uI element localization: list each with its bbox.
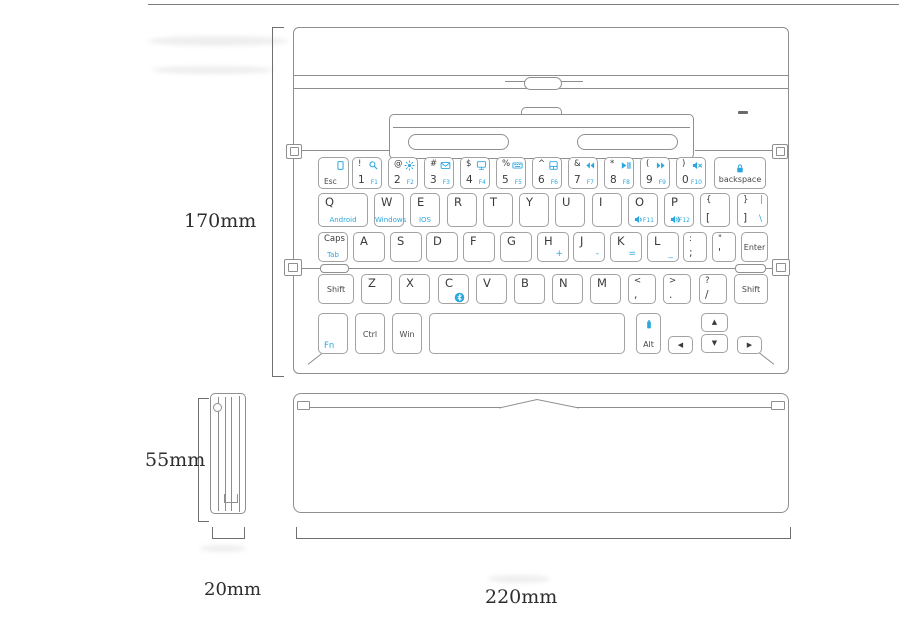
key-main-legend: R	[454, 197, 462, 209]
next-track-icon	[656, 160, 667, 171]
diagram-canvas: Esc!1F1@2F2#3F3$4F4%5F5^6F6&7F7*8F8(9F9)…	[0, 0, 899, 622]
key-space	[429, 313, 625, 354]
key-main-legend: backspace	[719, 176, 761, 184]
key-main-legend: 4	[466, 175, 473, 186]
lid-handle	[524, 77, 562, 90]
label-width: 220mm	[485, 586, 557, 608]
key-shift-legend: (	[646, 160, 649, 169]
key-main-legend: 1	[358, 175, 365, 186]
key-os-legend: IOS	[411, 217, 439, 224]
key-fn-legend: +	[555, 250, 563, 259]
key-2: @2F2	[388, 157, 418, 189]
key-s: S	[390, 232, 422, 262]
key-main-legend: ,	[634, 290, 637, 301]
key-v: V	[476, 274, 507, 304]
key-shift-legend: ^	[538, 160, 545, 169]
dim-folded-height-tick-top	[198, 398, 209, 399]
key-semicolon: :;	[683, 232, 707, 262]
key-6: ^6F6	[532, 157, 562, 189]
key-os-legend: Windows	[375, 217, 403, 224]
volume-up-icon	[670, 214, 681, 225]
key-main-legend: Win	[399, 331, 414, 339]
keyboard-side-view-folded	[210, 393, 246, 514]
key-r: R	[447, 193, 477, 227]
key-main-legend: Enter	[744, 244, 765, 252]
key-d: D	[426, 232, 458, 262]
stand-lip-line	[393, 127, 690, 128]
key-shift-right: Shift	[734, 274, 768, 304]
label-open-height: 170mm	[184, 210, 256, 232]
key-main-legend: Shift	[327, 286, 345, 294]
key-shift-legend: %	[502, 160, 510, 169]
dim-open-height-line	[272, 27, 273, 377]
key-main-legend: Fn	[324, 342, 334, 351]
key-a: A	[353, 232, 385, 262]
key-arrow-left: ◀	[668, 336, 693, 354]
key-right-bracket: }]|\	[737, 193, 768, 227]
key-main-legend: [	[706, 213, 710, 224]
key-shift-legend: <	[634, 277, 641, 286]
smudge	[152, 66, 274, 74]
fold-layer-line-1	[218, 397, 219, 511]
key-shift-legend: {	[706, 196, 711, 205]
lock-icon	[735, 163, 746, 174]
key-main-legend: Shift	[742, 286, 760, 294]
key-shift-legend: *	[610, 160, 614, 169]
touchpad-icon	[548, 160, 559, 171]
key-main-legend: N	[559, 278, 568, 290]
key-3: #3F3	[424, 157, 454, 189]
key-main-legend: ;	[689, 248, 693, 259]
latch-right	[771, 401, 785, 410]
corner-chamfer-left	[308, 352, 324, 364]
key-caps-tab: CapsTab	[318, 232, 348, 262]
fold-hinge-line	[298, 268, 785, 269]
key-h: H+	[537, 232, 569, 262]
top-line	[148, 4, 899, 5]
key-l: L_	[647, 232, 679, 262]
indicator-dash	[738, 111, 748, 114]
key-main-legend: X	[406, 278, 414, 290]
screen-lock-icon	[335, 160, 346, 171]
key-main-legend: Alt	[643, 341, 654, 349]
key-esc: Esc	[318, 157, 349, 189]
key-main-legend: B	[521, 278, 529, 290]
key-k: K=	[610, 232, 642, 262]
key-main-legend: 5	[502, 175, 509, 186]
key-4: $4F4	[460, 157, 490, 189]
key-main-legend: Q	[325, 197, 334, 209]
down-arrow-glyph: ▼	[702, 335, 727, 352]
key-shift-legend: ?	[705, 277, 710, 286]
key-fn-legend: F9	[659, 180, 666, 186]
dim-folded-height-tick-bottom	[198, 521, 209, 522]
key-main-legend: C	[445, 278, 453, 290]
key-shift-legend: "	[718, 235, 722, 244]
key-main-legend: Ctrl	[363, 331, 377, 339]
lid-band-line-upper	[294, 75, 788, 76]
key-fn-legend: |	[760, 196, 763, 205]
right-arrow-glyph: ▶	[738, 337, 761, 353]
key-x: X	[399, 274, 430, 304]
key-fn: Fn	[318, 313, 348, 354]
key-enter: Enter	[741, 232, 768, 262]
dim-width-line	[296, 538, 791, 539]
hinge-clasp-top-left-inner	[290, 147, 299, 156]
key-main-legend: .	[669, 290, 672, 301]
key-period: >.	[663, 274, 691, 304]
key-main-legend: ]	[743, 213, 747, 224]
key-ctrl: Ctrl	[355, 313, 385, 354]
key-main-legend: 6	[538, 175, 545, 186]
fold-layer-line-4	[239, 396, 240, 512]
key-shift-legend: >	[669, 277, 676, 286]
key-main-legend: A	[360, 236, 368, 248]
key-fn-legend: F10	[691, 180, 702, 186]
keyboard-light-icon	[512, 160, 523, 171]
key-main-legend: O	[635, 197, 644, 209]
dim-folded-depth-line	[212, 538, 245, 539]
key-fn-legend: F1	[371, 180, 378, 186]
prev-track-icon	[584, 160, 595, 171]
mute-icon	[692, 160, 703, 171]
latch-left	[297, 401, 310, 410]
tablet-stand	[389, 114, 694, 159]
key-main-legend: /	[705, 290, 709, 301]
key-shift-legend: !	[358, 160, 361, 169]
bluetooth-icon	[454, 292, 465, 303]
key-main-legend: Esc	[324, 178, 337, 186]
key-n: N	[552, 274, 583, 304]
hinge-pill-left	[320, 264, 349, 273]
key-e: EIOS	[410, 193, 440, 227]
key-main-legend: 3	[430, 175, 437, 186]
key-win: Win	[392, 313, 422, 354]
key-q: QAndroid	[318, 193, 368, 227]
key-fn-legend: F2	[407, 180, 414, 186]
key-fn-legend: F8	[623, 180, 630, 186]
key-shift-legend: $	[466, 160, 471, 169]
brightness-icon	[404, 160, 415, 171]
key-t: T	[483, 193, 513, 227]
key-w: WWindows	[374, 193, 404, 227]
key-arrow-down: ▼	[701, 334, 728, 353]
key-left-bracket: {[	[700, 193, 730, 227]
key-1: !1F1	[352, 157, 382, 189]
key-shift-legend: &	[574, 160, 581, 169]
key-main-legend: T	[490, 197, 497, 209]
dim-open-height-tick-top	[272, 27, 284, 28]
key-comma: <,	[628, 274, 656, 304]
key-9: (9F9	[640, 157, 670, 189]
key-fn-legend: F7	[587, 180, 594, 186]
key-quote: "'	[712, 232, 736, 262]
hinge-pill-right	[735, 264, 766, 273]
key-main-legend: 9	[646, 175, 653, 186]
tablet-slot-right	[577, 134, 678, 150]
key-f: F	[463, 232, 495, 262]
key-o: OF11	[628, 193, 658, 227]
key-main-legend: '	[718, 248, 721, 259]
monitor-icon	[476, 160, 487, 171]
key-fn-legend: F6	[551, 180, 558, 186]
center-bump	[499, 398, 579, 409]
key-fn-legend: _	[669, 250, 674, 259]
hinge-pin-circle	[213, 403, 222, 412]
key-main-legend: J	[580, 236, 584, 248]
up-arrow-glyph: ▲	[702, 314, 727, 331]
hinge-clasp-mid-right-inner	[776, 263, 786, 272]
tablet-slot-left	[408, 134, 509, 150]
deck-edge-left	[296, 150, 389, 151]
key-g: G	[500, 232, 532, 262]
key-shift-left: Shift	[318, 274, 354, 304]
dim-open-height-tick-bottom	[272, 376, 284, 377]
key-arrow-right: ▶	[737, 336, 762, 354]
left-arrow-glyph: ◀	[669, 337, 692, 353]
key-j: J-	[573, 232, 605, 262]
key-arrow-up: ▲	[701, 313, 728, 332]
key-os-legend: Tab	[319, 252, 347, 259]
smudge	[148, 36, 288, 46]
key-fn-legend: F4	[479, 180, 486, 186]
key-b: B	[514, 274, 545, 304]
key-fn-legend: \	[759, 215, 762, 224]
key-main-legend: V	[483, 278, 491, 290]
key-fn-legend: =	[628, 250, 636, 259]
key-main-legend: 0	[682, 175, 689, 186]
keyboard-front-view-closed	[293, 393, 789, 513]
hinge-clasp-top-right-inner	[776, 147, 785, 156]
key-os-legend: Android	[319, 217, 367, 224]
key-main-legend: 7	[574, 175, 581, 186]
key-main-legend: Y	[526, 197, 533, 209]
play-pause-icon	[620, 160, 631, 171]
key-main-legend: P	[671, 197, 678, 209]
key-main-legend: K	[617, 236, 625, 248]
email-icon	[440, 160, 451, 171]
key-u: U	[555, 193, 585, 227]
key-fn-legend: F5	[515, 180, 522, 186]
key-main-legend: U	[562, 197, 571, 209]
key-shift-legend: }	[743, 196, 748, 205]
key-main-legend: 8	[610, 175, 617, 186]
key-fn-legend: F3	[443, 180, 450, 186]
key-shift-legend: Caps	[324, 235, 345, 244]
key-y: Y	[519, 193, 549, 227]
volume-down-icon	[634, 214, 645, 225]
key-alt: Alt	[636, 313, 661, 354]
key-main-legend: I	[599, 197, 603, 209]
key-m: M	[590, 274, 621, 304]
key-shift-legend: )	[682, 160, 685, 169]
key-7: &7F7	[568, 157, 598, 189]
key-shift-legend: @	[394, 160, 403, 169]
key-main-legend: G	[507, 236, 516, 248]
key-slash: ?/	[699, 274, 727, 304]
label-folded-depth: 20mm	[204, 579, 261, 600]
key-main-legend: E	[417, 197, 425, 209]
key-shift-legend: :	[689, 235, 692, 244]
key-main-legend: D	[433, 236, 442, 248]
key-5: %5F5	[496, 157, 526, 189]
battery-icon	[643, 319, 654, 330]
key-main-legend: H	[544, 236, 553, 248]
corner-chamfer-right	[759, 352, 775, 364]
key-backspace: backspace	[714, 157, 766, 189]
key-main-legend: Z	[368, 278, 376, 290]
key-z: Z	[361, 274, 392, 304]
key-8: *8F8	[604, 157, 634, 189]
label-folded-height: 55mm	[145, 449, 205, 471]
key-c: C	[438, 274, 469, 304]
side-foot-hook	[224, 494, 238, 503]
key-0: )0F10	[676, 157, 706, 189]
key-main-legend: S	[397, 236, 405, 248]
key-main-legend: W	[381, 197, 393, 209]
key-main-legend: L	[654, 236, 661, 248]
key-p: PF12	[664, 193, 694, 227]
smudge	[488, 575, 550, 583]
key-fn-legend: -	[596, 250, 599, 259]
key-main-legend: M	[597, 278, 607, 290]
hinge-clasp-mid-left-inner	[288, 263, 298, 272]
key-i: I	[592, 193, 622, 227]
smudge	[200, 545, 246, 552]
key-main-legend: 2	[394, 175, 401, 186]
key-shift-legend: #	[430, 160, 437, 169]
search-icon	[368, 160, 379, 171]
key-main-legend: F	[470, 236, 477, 248]
